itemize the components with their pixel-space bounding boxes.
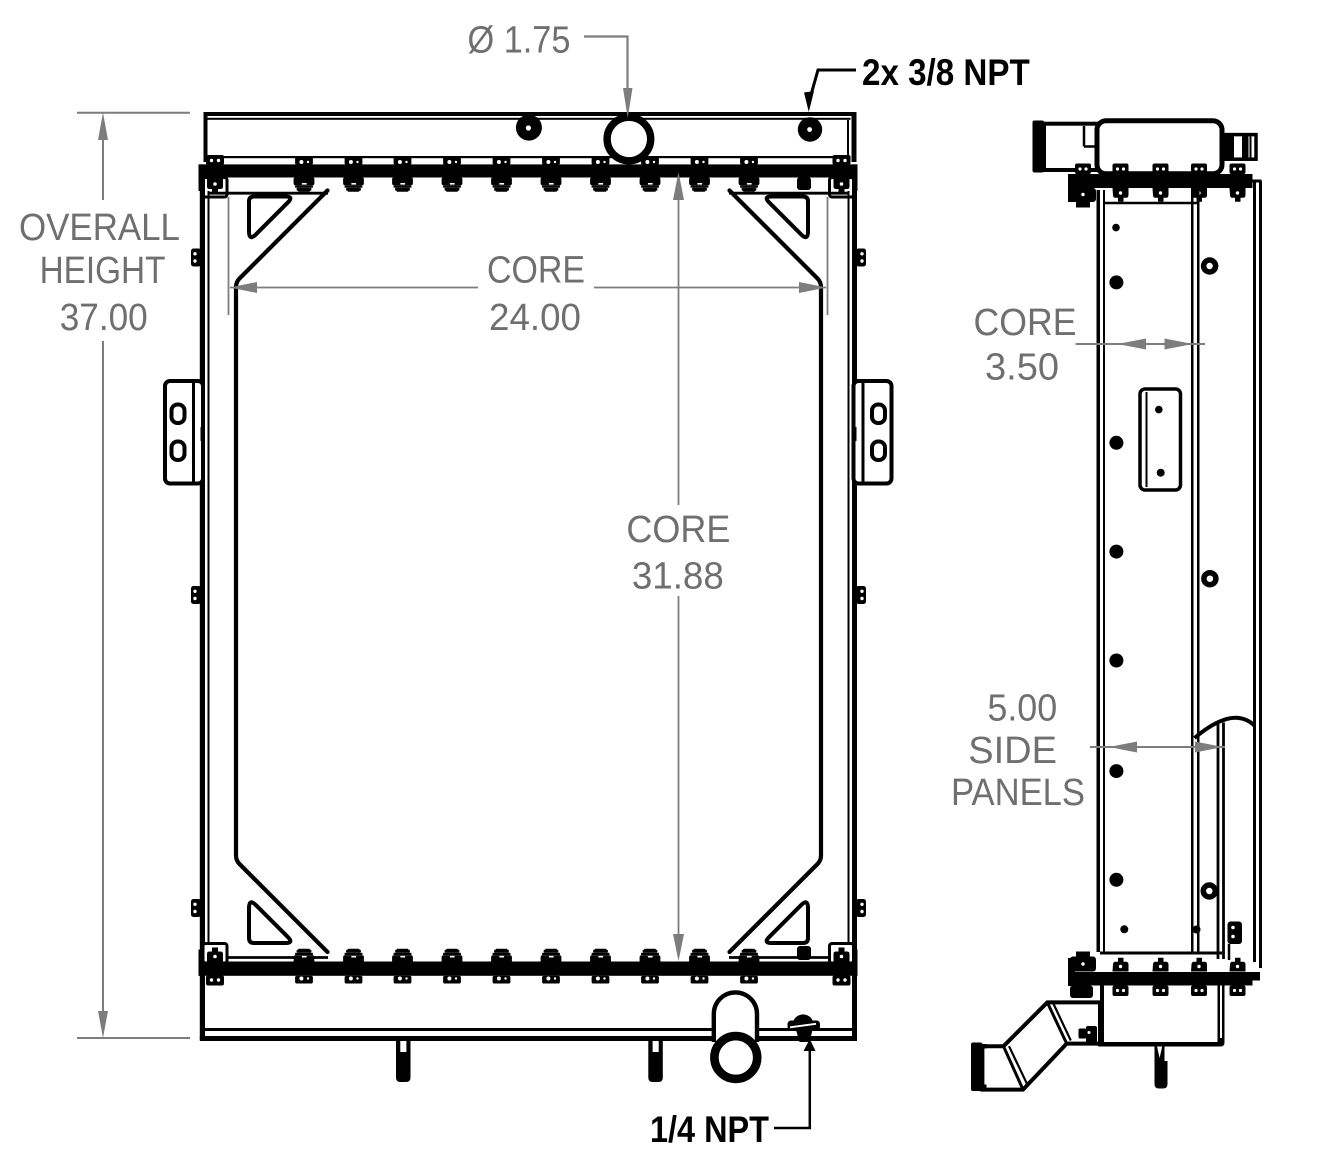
- svg-text:31.88: 31.88: [632, 554, 724, 597]
- svg-text:CORE: CORE: [626, 508, 730, 550]
- svg-text:5.00: 5.00: [987, 687, 1057, 729]
- svg-text:SIDE: SIDE: [968, 730, 1057, 772]
- svg-text:OVERALL: OVERALL: [19, 206, 180, 249]
- svg-text:CORE: CORE: [487, 248, 585, 291]
- svg-text:Ø 1.75: Ø 1.75: [468, 18, 571, 61]
- svg-text:PANELS: PANELS: [951, 771, 1085, 814]
- svg-text:HEIGHT: HEIGHT: [40, 249, 166, 292]
- svg-text:CORE: CORE: [974, 301, 1077, 343]
- svg-text:2x 3/8 NPT: 2x 3/8 NPT: [862, 52, 1030, 93]
- svg-text:37.00: 37.00: [60, 296, 148, 339]
- svg-text:3.50: 3.50: [985, 347, 1059, 389]
- svg-text:24.00: 24.00: [489, 295, 581, 338]
- svg-text:1/4 NPT: 1/4 NPT: [650, 1110, 769, 1150]
